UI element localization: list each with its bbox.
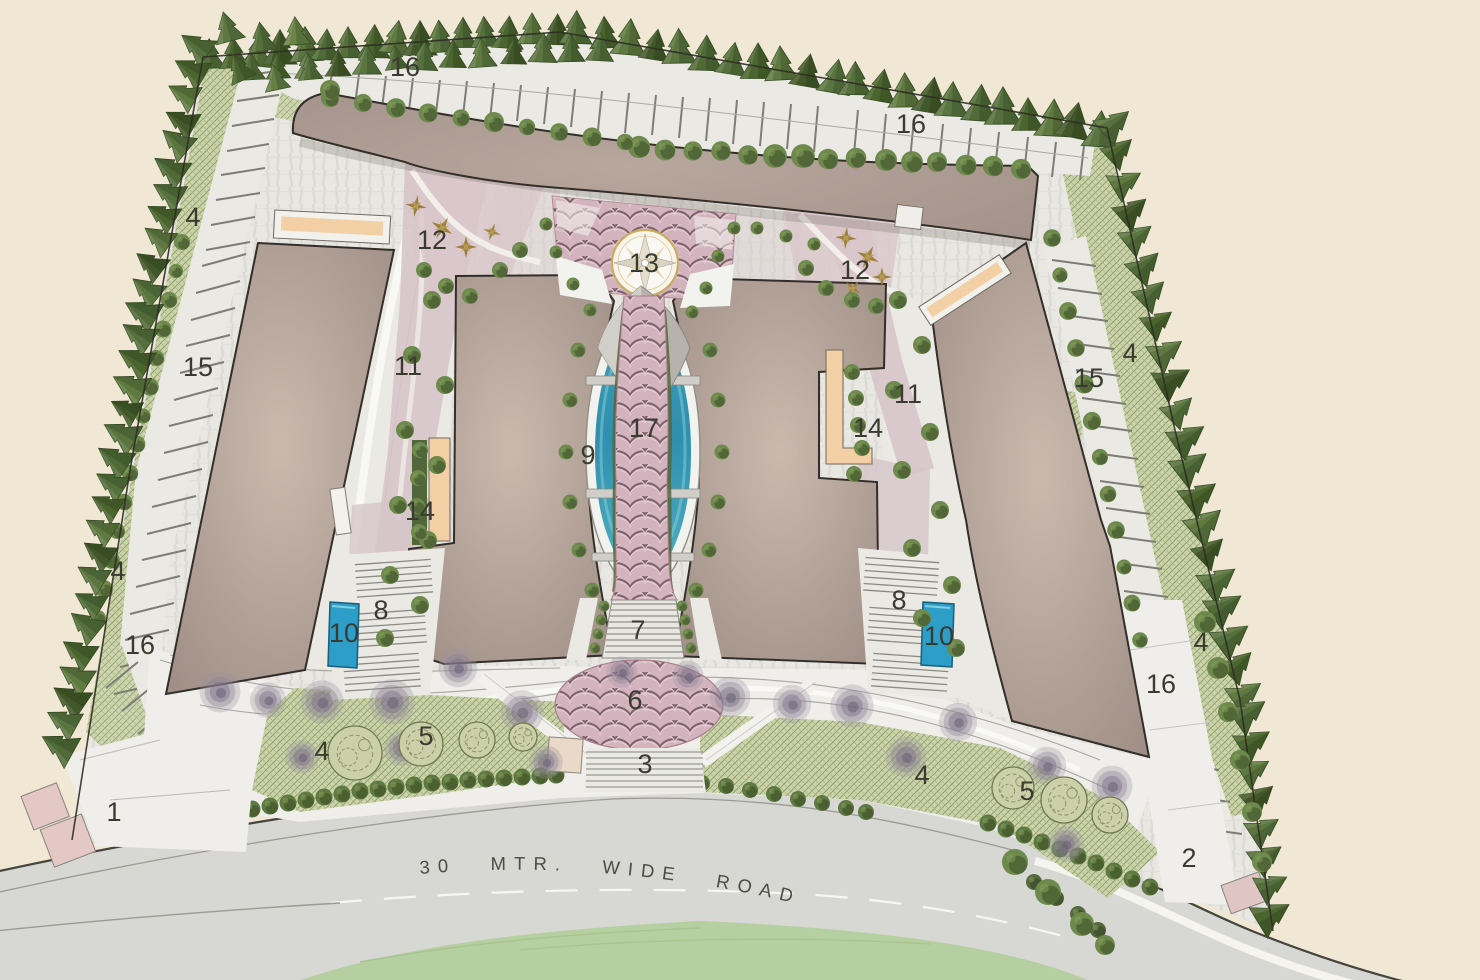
svg-text:11: 11: [894, 379, 922, 409]
svg-text:8: 8: [891, 585, 906, 615]
svg-text:14: 14: [853, 413, 883, 443]
svg-text:9: 9: [580, 440, 595, 470]
svg-text:7: 7: [630, 615, 645, 645]
svg-text:15: 15: [183, 352, 213, 382]
svg-text:4: 4: [1122, 338, 1137, 368]
svg-text:8: 8: [373, 595, 388, 625]
svg-text:2: 2: [1181, 843, 1196, 873]
svg-text:16: 16: [1146, 669, 1176, 699]
svg-text:5: 5: [1019, 776, 1034, 806]
svg-text:4: 4: [914, 760, 929, 790]
svg-text:14: 14: [405, 496, 435, 526]
svg-text:4: 4: [314, 736, 329, 766]
svg-text:1: 1: [106, 797, 121, 827]
svg-text:12: 12: [840, 255, 870, 285]
svg-text:16: 16: [125, 630, 155, 660]
svg-text:10: 10: [924, 621, 954, 651]
svg-text:4: 4: [1193, 627, 1208, 657]
svg-text:5: 5: [418, 721, 433, 751]
svg-text:6: 6: [627, 685, 642, 715]
svg-text:10: 10: [329, 618, 359, 648]
svg-text:11: 11: [394, 351, 422, 381]
svg-text:16: 16: [896, 109, 926, 139]
svg-text:12: 12: [417, 225, 447, 255]
svg-text:4: 4: [110, 556, 125, 586]
svg-text:13: 13: [629, 248, 659, 278]
svg-text:16: 16: [390, 52, 420, 82]
svg-text:15: 15: [1074, 363, 1104, 393]
svg-text:17: 17: [629, 413, 659, 443]
svg-text:3: 3: [637, 749, 652, 779]
svg-text:4: 4: [185, 202, 200, 232]
